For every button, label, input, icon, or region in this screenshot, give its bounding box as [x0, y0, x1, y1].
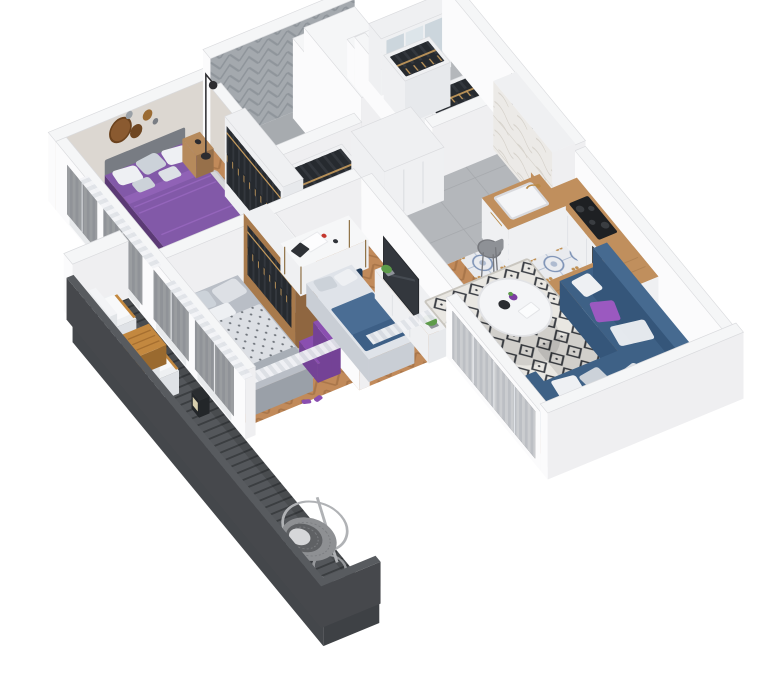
floorplan-3d-render — [0, 0, 761, 700]
floor-plan-image — [0, 0, 761, 700]
apartment — [48, 0, 743, 646]
